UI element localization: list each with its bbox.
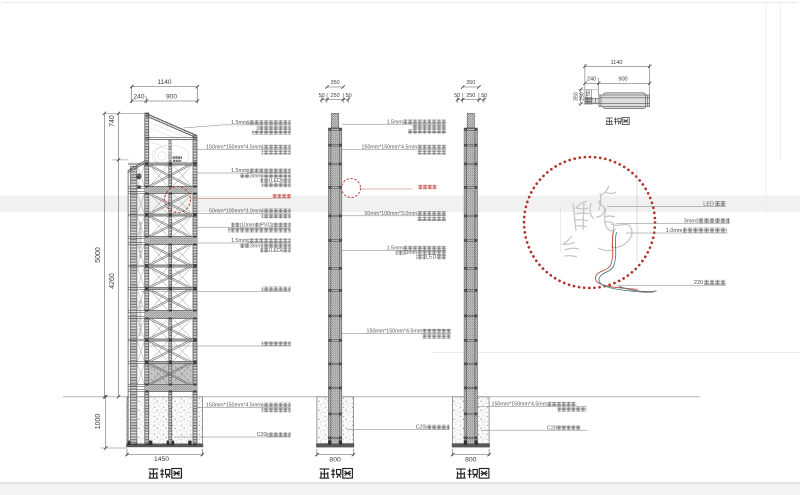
svg-text:3mm: 3mm xyxy=(405,250,417,256)
svg-text:LED: LED xyxy=(703,201,714,207)
svg-text:350: 350 xyxy=(466,80,475,86)
svg-text:1.5mm: 1.5mm xyxy=(231,238,248,244)
svg-text:900: 900 xyxy=(618,77,627,83)
svg-text:LED: LED xyxy=(426,255,436,261)
svg-text:150mm*150mm*4.5mm: 150mm*150mm*4.5mm xyxy=(206,403,262,409)
svg-text:50: 50 xyxy=(346,93,352,99)
svg-text:150mm*150mm*4.5mm: 150mm*150mm*4.5mm xyxy=(492,402,548,408)
svg-text:50: 50 xyxy=(586,90,592,96)
svg-text:4260: 4260 xyxy=(109,273,116,289)
svg-text:740: 740 xyxy=(109,115,116,127)
svg-text:1450: 1450 xyxy=(154,456,169,463)
svg-text:1.5mm: 1.5mm xyxy=(387,119,404,125)
svg-text:LED: LED xyxy=(271,248,281,254)
svg-text:220: 220 xyxy=(694,280,703,286)
svg-text:250: 250 xyxy=(331,93,340,99)
svg-text:350: 350 xyxy=(573,92,579,101)
svg-text:50: 50 xyxy=(481,93,487,99)
svg-text:1.0mm: 1.0mm xyxy=(666,228,683,234)
svg-text:1140: 1140 xyxy=(157,79,172,86)
svg-text:150mm*150mm*4.5mm: 150mm*150mm*4.5mm xyxy=(362,145,418,151)
svg-text:50: 50 xyxy=(454,93,460,99)
svg-text:1140: 1140 xyxy=(610,60,622,66)
svg-text:3mm: 3mm xyxy=(684,218,697,224)
svg-text:10mm: 10mm xyxy=(241,222,256,228)
svg-text:C20: C20 xyxy=(547,425,557,431)
svg-text:C20: C20 xyxy=(257,432,267,438)
svg-text:240: 240 xyxy=(587,77,596,83)
svg-text:50mm*100mm*3.0mm: 50mm*100mm*3.0mm xyxy=(209,208,262,214)
svg-text:900: 900 xyxy=(166,94,177,101)
svg-text:250: 250 xyxy=(466,93,475,99)
svg-text:800: 800 xyxy=(465,456,477,463)
svg-text:3mm: 3mm xyxy=(250,243,262,249)
svg-text:240: 240 xyxy=(133,94,144,101)
svg-text:50mm*100mm*3.0mm: 50mm*100mm*3.0mm xyxy=(364,211,417,217)
svg-text:1.5mm: 1.5mm xyxy=(231,168,248,174)
svg-text:PVC: PVC xyxy=(260,222,271,228)
svg-text:150mm*150mm*4.5mm: 150mm*150mm*4.5mm xyxy=(367,329,423,335)
svg-text:150mm*150mm*4.5mm: 150mm*150mm*4.5mm xyxy=(206,145,262,151)
svg-text:50: 50 xyxy=(319,93,325,99)
svg-text:800: 800 xyxy=(329,456,341,463)
svg-text:1.5mm: 1.5mm xyxy=(231,120,248,126)
svg-text:1000: 1000 xyxy=(95,414,102,430)
svg-text:3mm: 3mm xyxy=(250,174,262,180)
svg-text:C20: C20 xyxy=(416,425,426,431)
svg-text:350: 350 xyxy=(331,80,340,86)
svg-text:5000: 5000 xyxy=(95,247,102,263)
